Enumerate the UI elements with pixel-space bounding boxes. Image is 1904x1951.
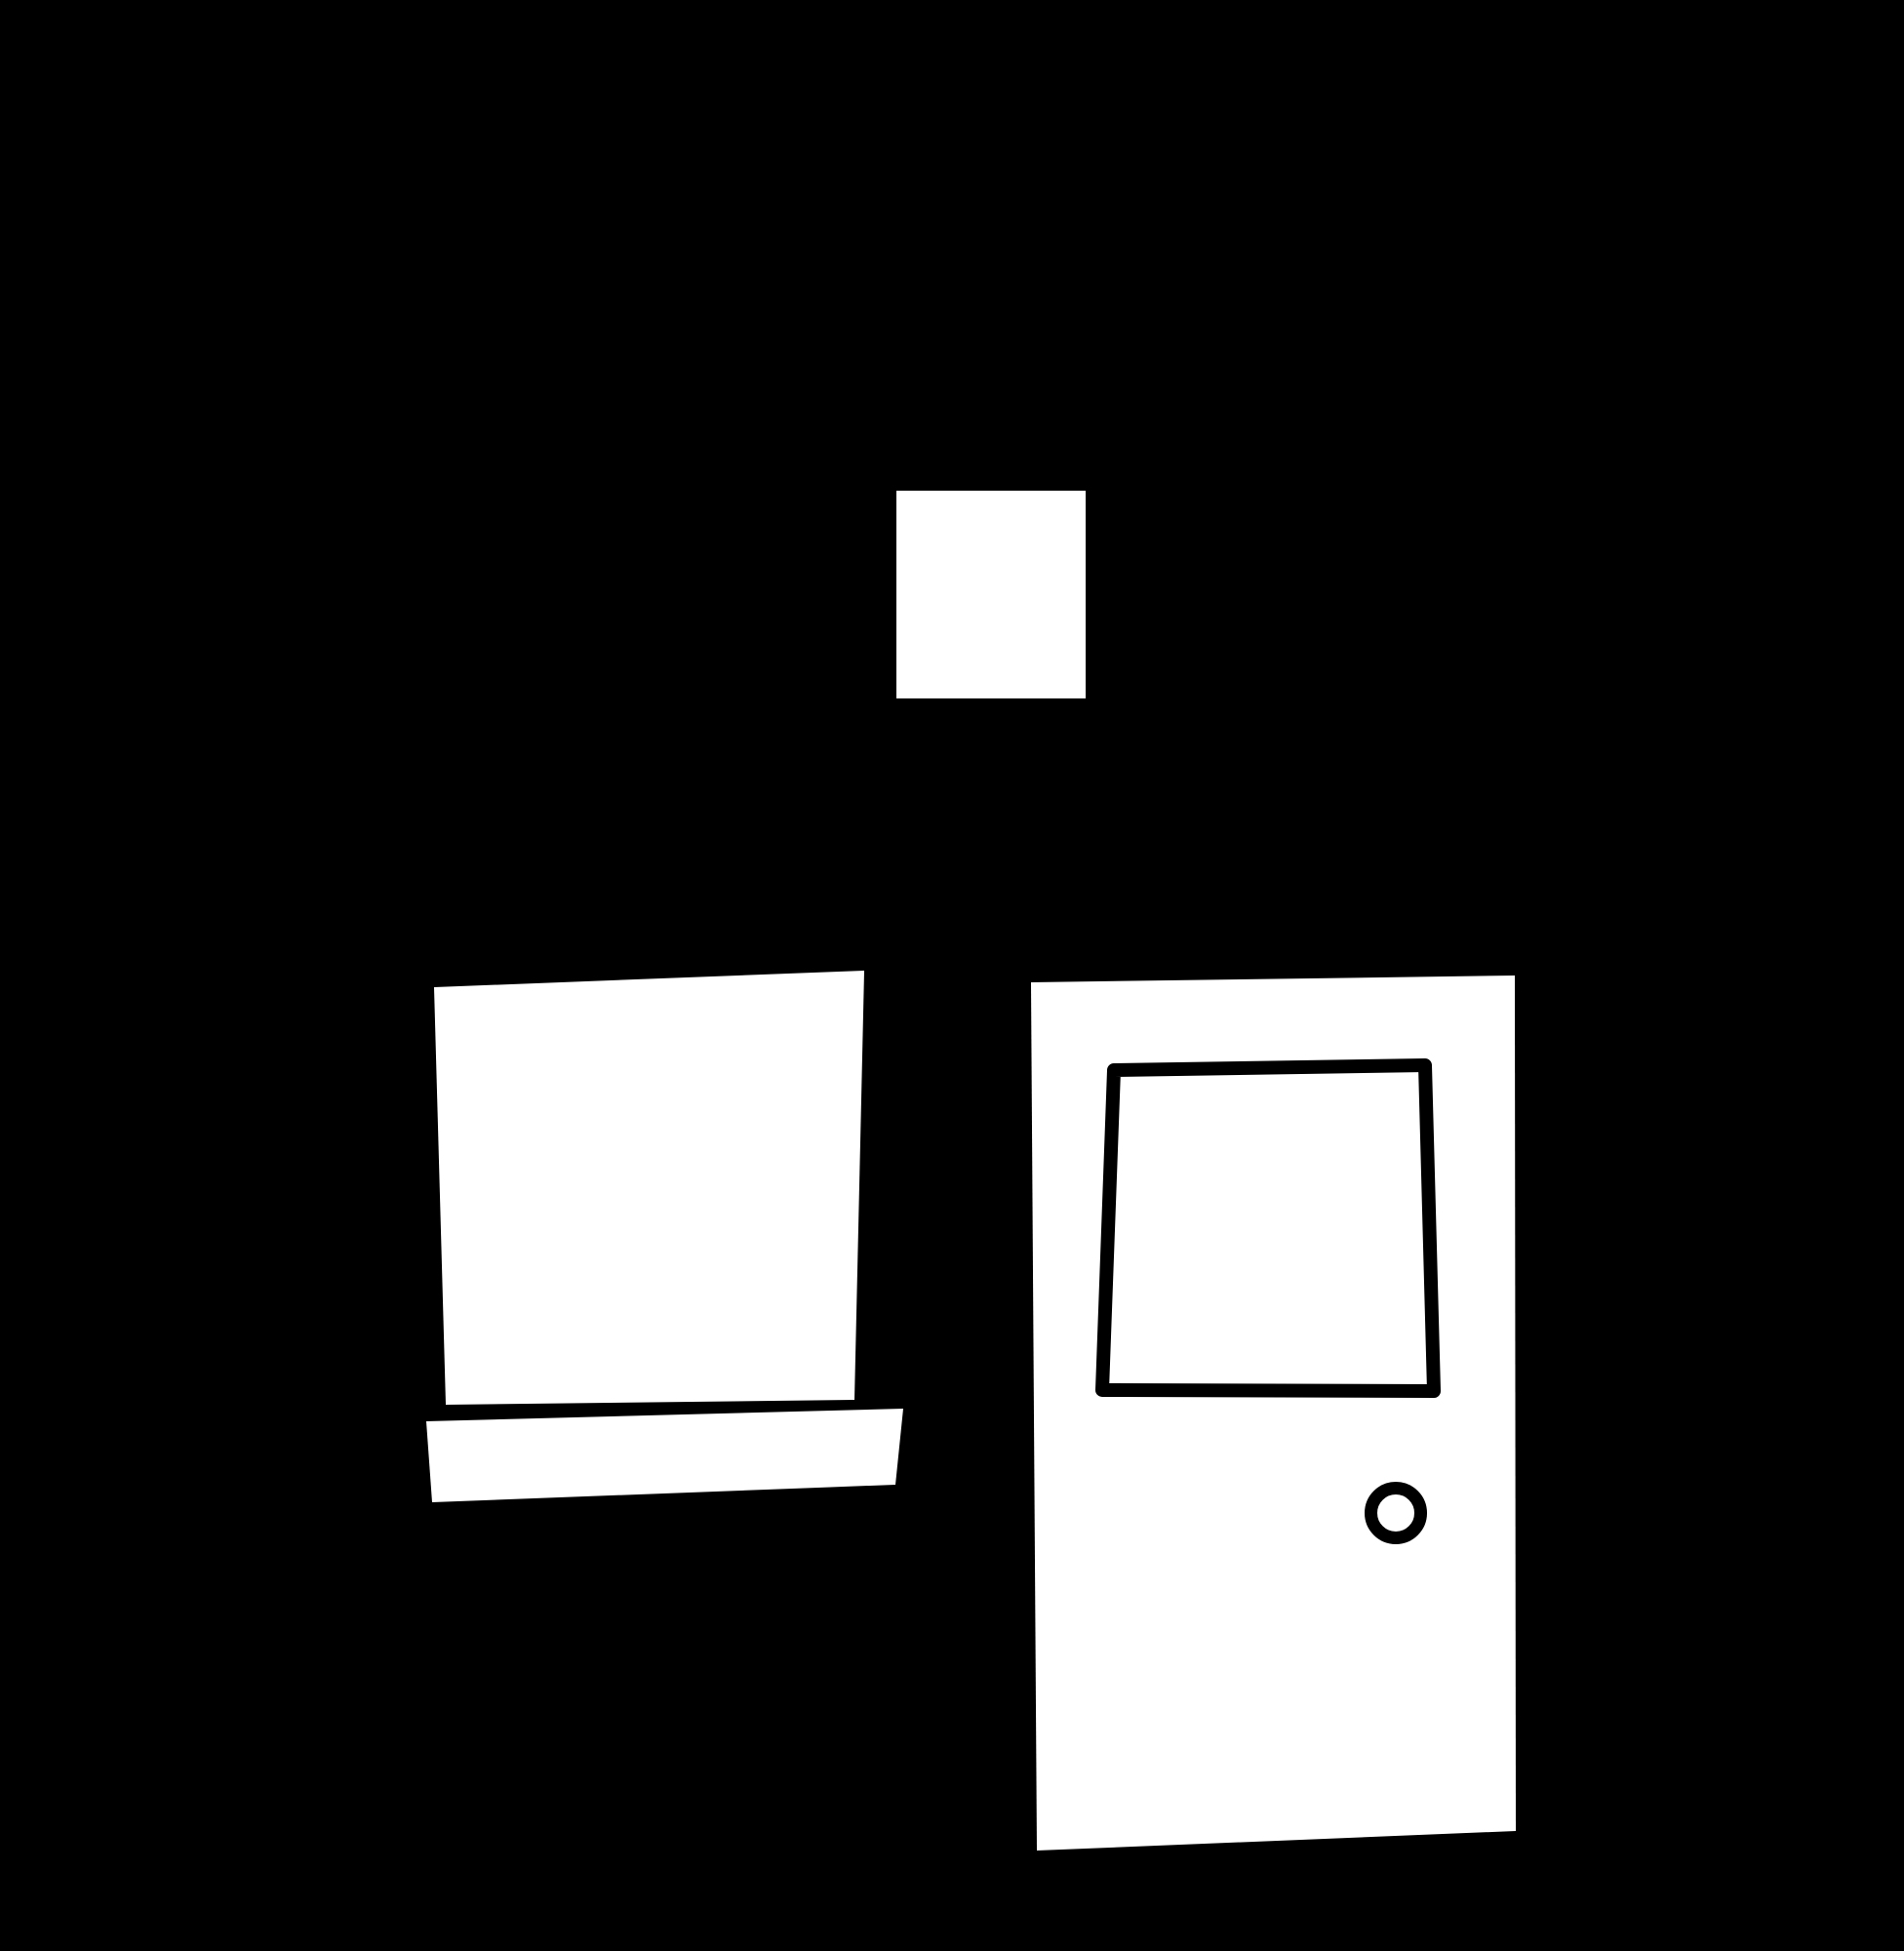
attic-window xyxy=(896,491,1086,698)
house-wall-illustration xyxy=(0,0,1904,1951)
silhouette-background xyxy=(0,0,1904,1951)
illustration-stage xyxy=(0,0,1904,1951)
door-knob xyxy=(1371,1489,1421,1538)
door-window xyxy=(1102,1065,1434,1391)
left-window xyxy=(434,971,864,1405)
